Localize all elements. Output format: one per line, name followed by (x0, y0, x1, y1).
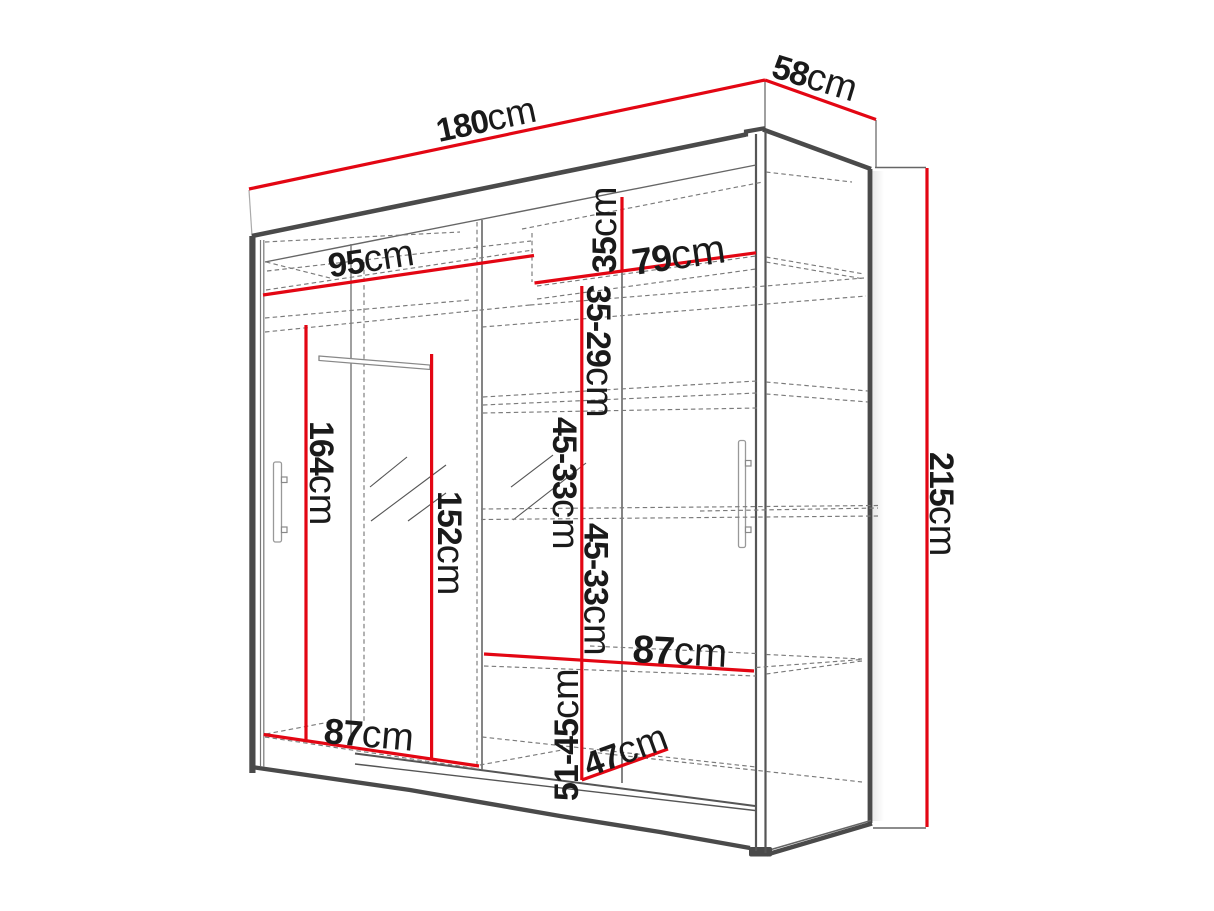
svg-text:51-45cm: 51-45cm (545, 668, 587, 801)
svg-text:215cm: 215cm (921, 452, 963, 556)
svg-text:45-33cm: 45-33cm (576, 523, 618, 656)
svg-text:87cm: 87cm (632, 627, 729, 676)
svg-text:35-29cm: 35-29cm (578, 285, 620, 418)
svg-text:35cm: 35cm (583, 187, 625, 273)
svg-text:152cm: 152cm (429, 491, 471, 595)
svg-text:164cm: 164cm (301, 421, 343, 525)
